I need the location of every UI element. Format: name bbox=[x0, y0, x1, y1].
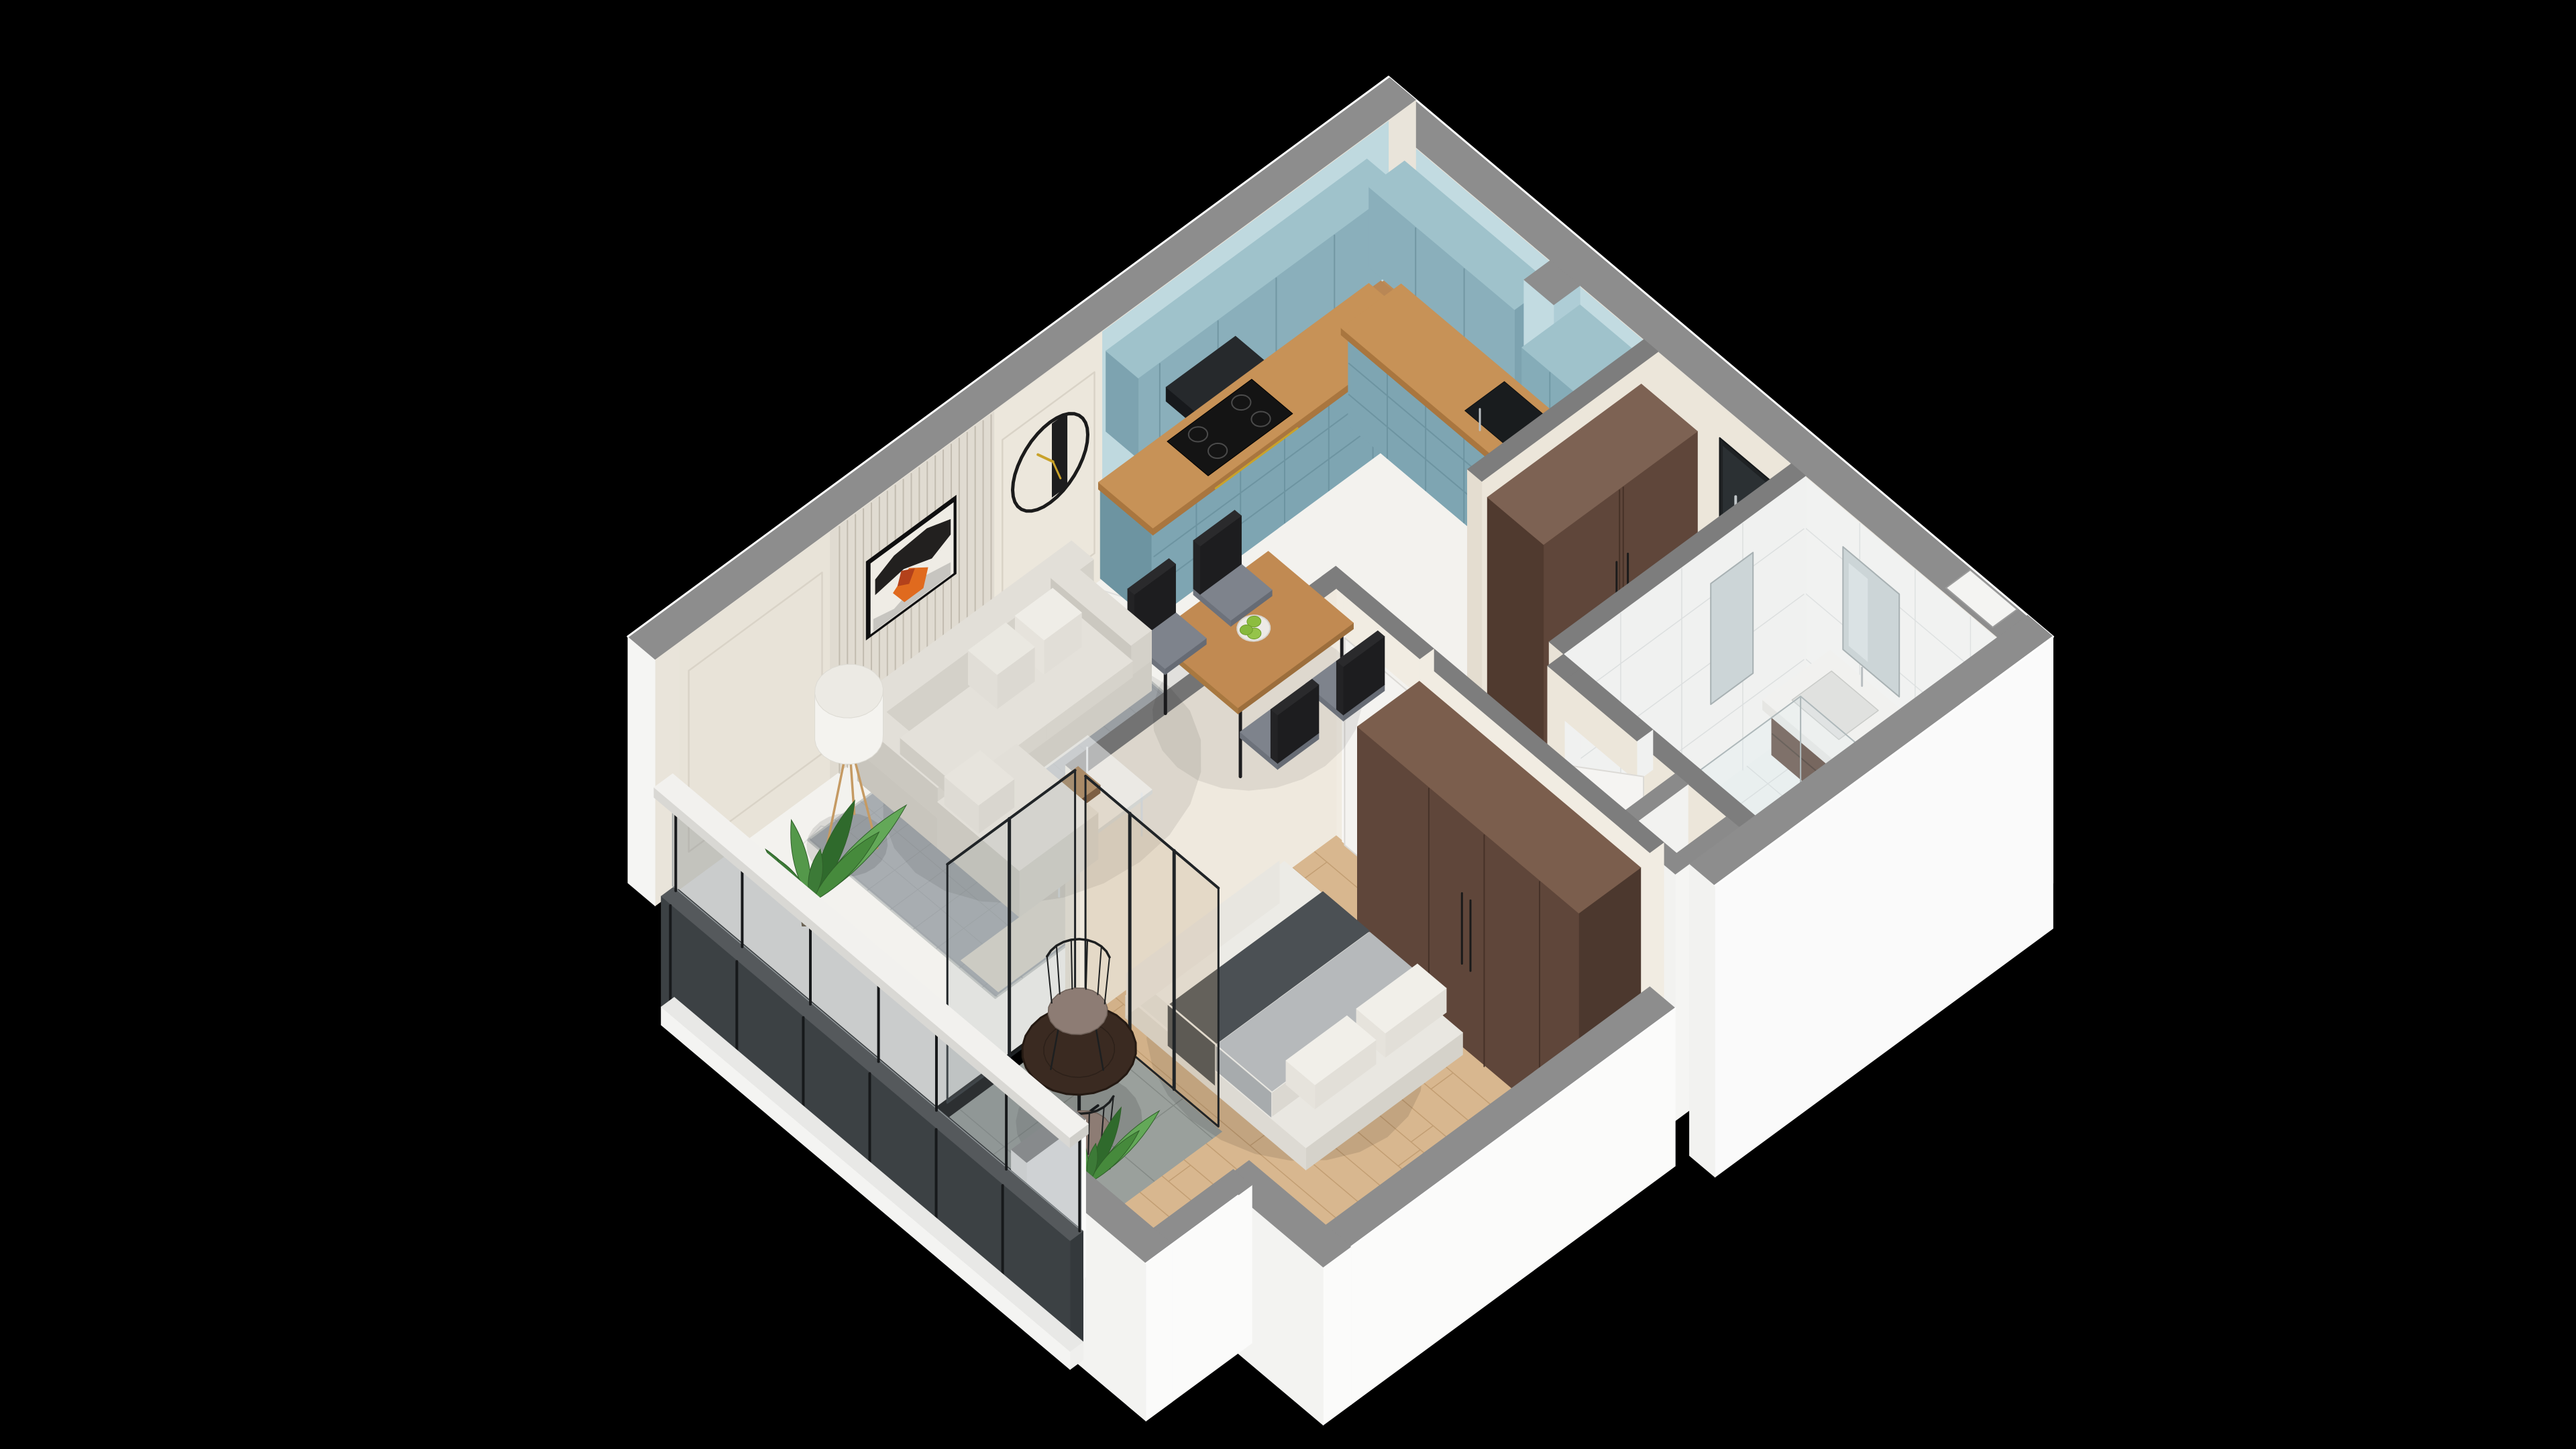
apartment-3d-floorplan bbox=[0, 0, 2576, 1449]
apple-3 bbox=[1240, 625, 1252, 635]
bath-mirror-shine bbox=[1849, 563, 1868, 662]
render-stage bbox=[0, 0, 2576, 1449]
floor-lamp-shade bbox=[815, 664, 883, 764]
wall-clock-sector bbox=[1052, 413, 1067, 497]
